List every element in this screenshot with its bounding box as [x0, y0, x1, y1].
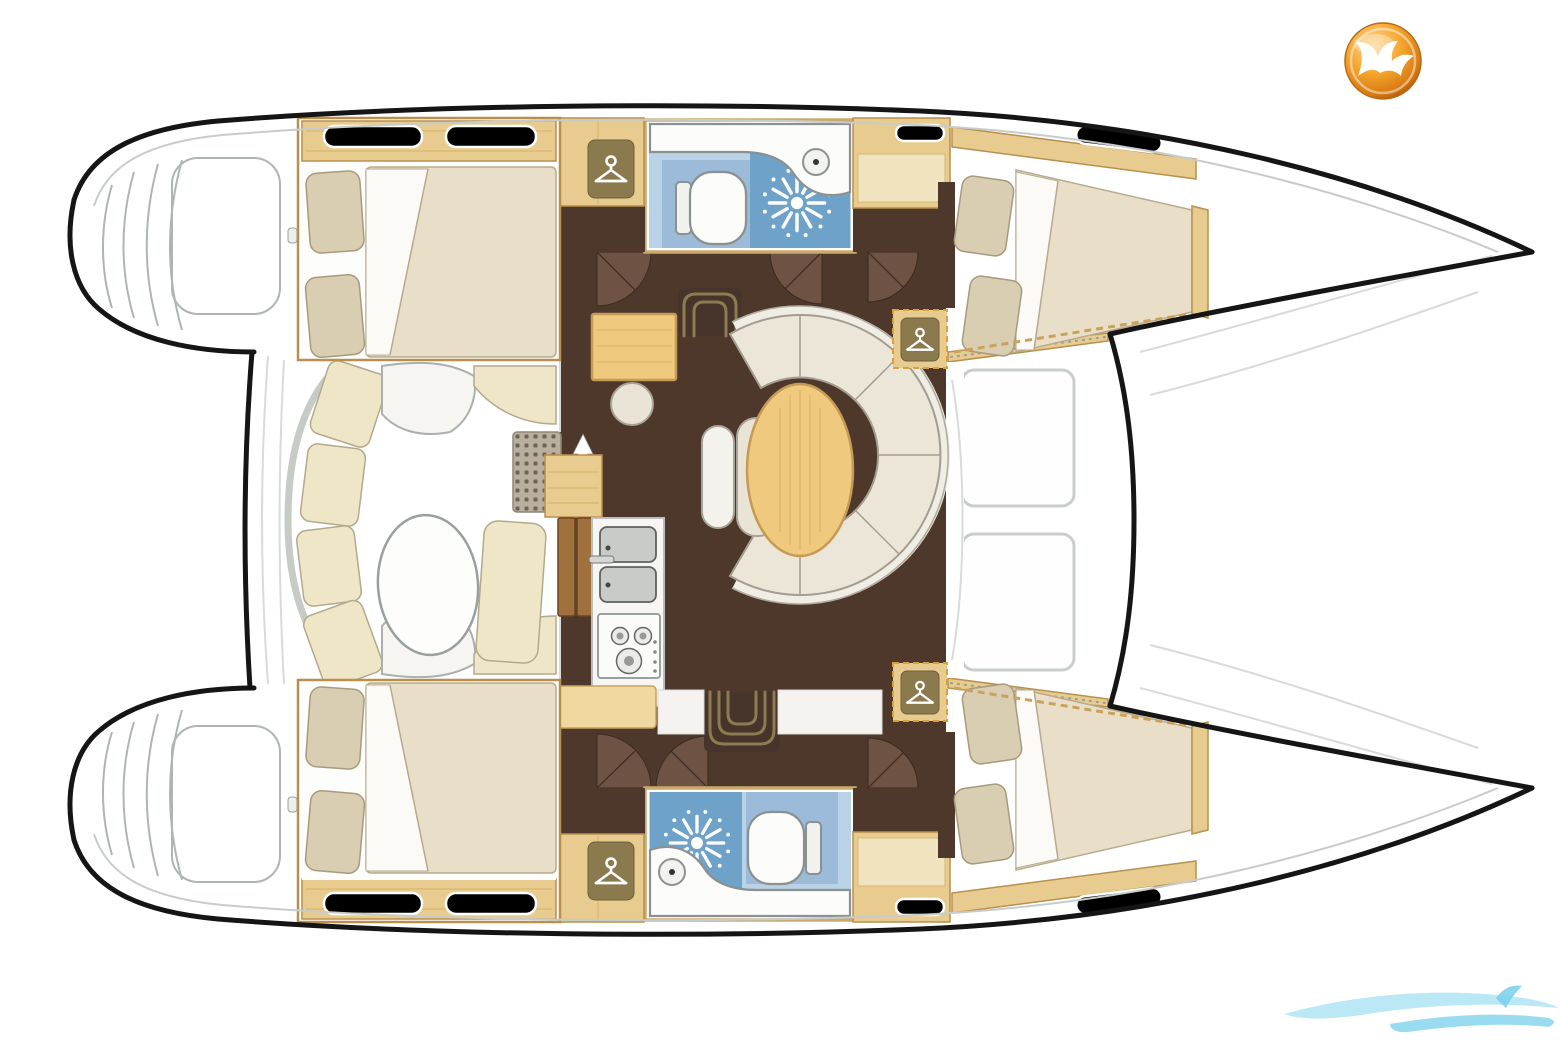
pillow	[305, 686, 364, 770]
cabin-window	[446, 126, 536, 147]
salon-wardrobe-aft	[893, 663, 947, 721]
starboard-aft-cabin	[298, 680, 560, 922]
starboard-head	[645, 788, 855, 920]
port-head	[645, 120, 855, 252]
forepeak-bulkhead	[1192, 206, 1208, 318]
companionway-steps-port	[678, 288, 742, 336]
salon-landing	[778, 690, 882, 734]
cabin-window	[446, 893, 536, 914]
side-deck	[946, 362, 964, 678]
cockpit-seat	[382, 363, 475, 434]
trampoline-net	[962, 370, 1074, 506]
toilet	[748, 812, 804, 884]
catamaran-floor-plan	[0, 0, 1560, 1040]
pillow	[305, 274, 366, 358]
galley-door	[558, 518, 575, 616]
pillow	[305, 170, 364, 254]
floor-plan-svg	[0, 0, 1560, 1040]
pillow	[953, 175, 1015, 257]
cabin-window	[324, 893, 422, 914]
trampoline-net	[962, 534, 1074, 670]
site-logo	[1345, 23, 1421, 99]
forepeak-bulkhead	[1192, 722, 1208, 834]
faucet	[589, 556, 614, 563]
pillow	[953, 783, 1015, 865]
cleat	[288, 797, 297, 812]
port-aft-cabin	[298, 118, 560, 360]
galley-cabinet	[545, 455, 602, 517]
chart-desk	[592, 314, 676, 380]
salon-landing	[658, 690, 704, 734]
toilet	[690, 172, 746, 244]
nav-stool	[611, 383, 653, 425]
galley-stove	[598, 614, 660, 678]
toilet-tank	[676, 182, 691, 234]
pillow	[305, 790, 366, 874]
cleat	[288, 228, 297, 243]
deck-hatch	[896, 125, 944, 141]
deck-hatch	[896, 899, 944, 915]
companionway-steps-starboard	[704, 692, 780, 752]
cockpit-lounge-seat	[475, 520, 547, 664]
galley-worktop	[546, 686, 656, 728]
salon-bench	[702, 426, 734, 528]
salon-wardrobe-fwd	[893, 310, 947, 368]
cabin-window	[324, 126, 422, 147]
toilet-tank	[806, 822, 821, 874]
